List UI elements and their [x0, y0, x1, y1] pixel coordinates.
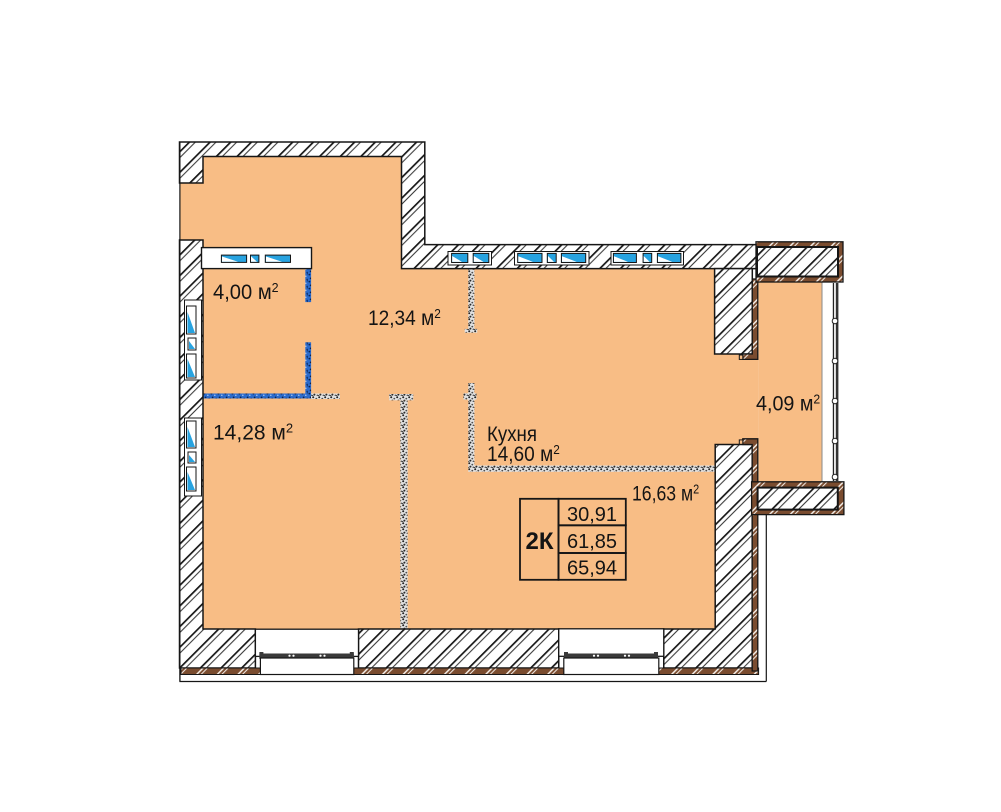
svg-text:4,00 м2: 4,00 м2 [213, 280, 279, 304]
svg-text:16,63 м2: 16,63 м2 [632, 482, 699, 506]
svg-text:12,34 м2: 12,34 м2 [368, 306, 441, 330]
svg-text:4,09 м2: 4,09 м2 [756, 392, 820, 415]
svg-text:2К: 2К [526, 528, 554, 555]
svg-text:14,60 м2: 14,60 м2 [487, 442, 560, 466]
svg-text:30,91: 30,91 [567, 504, 617, 526]
svg-text:65,94: 65,94 [567, 558, 617, 580]
svg-text:14,28 м2: 14,28 м2 [213, 421, 293, 445]
svg-text:61,85: 61,85 [567, 531, 617, 553]
